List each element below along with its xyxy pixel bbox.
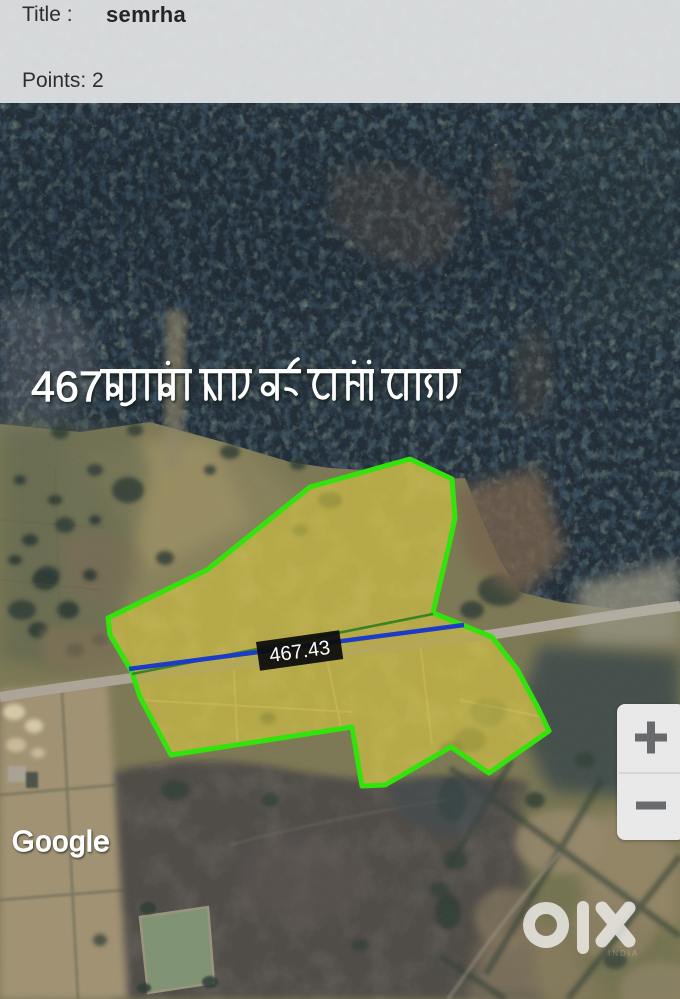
svg-text:467: 467 xyxy=(31,363,103,411)
svg-text:Google: Google xyxy=(12,826,110,858)
svg-text:INDIA: INDIA xyxy=(608,949,639,958)
